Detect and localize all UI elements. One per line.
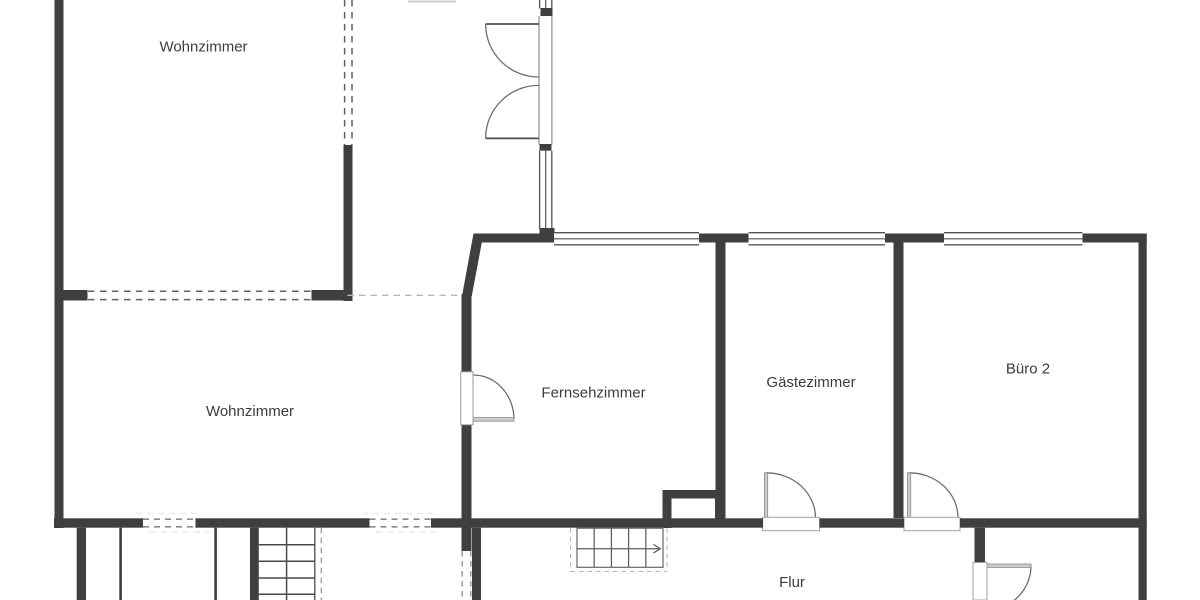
svg-text:Flur: Flur [779,574,805,591]
svg-text:Wohnzimmer: Wohnzimmer [206,403,294,420]
svg-text:Wohnzimmer: Wohnzimmer [159,39,247,56]
svg-text:Büro 2: Büro 2 [1006,361,1050,378]
svg-text:Gästezimmer: Gästezimmer [766,374,855,391]
svg-text:Fernsehzimmer: Fernsehzimmer [541,385,645,402]
